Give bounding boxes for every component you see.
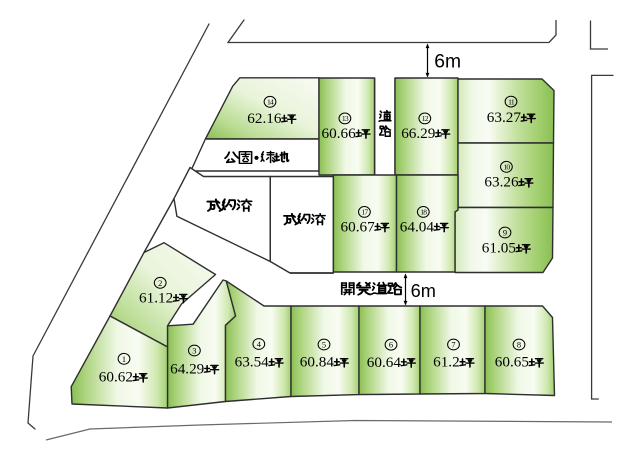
svg-text:64.29: 64.29 xyxy=(170,360,204,377)
svg-text:61.2: 61.2 xyxy=(433,354,460,371)
svg-text:12: 12 xyxy=(422,114,429,123)
svg-text:60.67: 60.67 xyxy=(341,218,376,235)
svg-text:60.62: 60.62 xyxy=(99,369,133,386)
svg-text:10: 10 xyxy=(503,163,510,172)
svg-text:13: 13 xyxy=(342,114,349,123)
svg-text:2: 2 xyxy=(158,279,162,288)
svg-text:64.04: 64.04 xyxy=(400,218,435,235)
svg-text:6: 6 xyxy=(389,341,393,350)
svg-text:17: 17 xyxy=(361,208,368,217)
svg-text:9: 9 xyxy=(503,229,507,238)
svg-text:18: 18 xyxy=(420,208,427,217)
svg-text:3: 3 xyxy=(192,347,196,356)
svg-text:60.66: 60.66 xyxy=(322,125,357,142)
svg-text:7: 7 xyxy=(451,341,455,350)
svg-text:63.27: 63.27 xyxy=(487,109,522,126)
svg-text:61.05: 61.05 xyxy=(482,240,516,257)
svg-text:6m: 6m xyxy=(434,52,461,73)
svg-text:6m: 6m xyxy=(411,281,436,301)
svg-text:1: 1 xyxy=(122,355,126,364)
svg-text:62.16: 62.16 xyxy=(247,110,282,127)
svg-text:14: 14 xyxy=(267,98,274,107)
svg-text:5: 5 xyxy=(322,341,326,350)
svg-text:61.12: 61.12 xyxy=(139,289,173,306)
svg-text:60.64: 60.64 xyxy=(367,354,402,371)
svg-text:63.26: 63.26 xyxy=(484,174,519,191)
svg-text:8: 8 xyxy=(517,341,521,350)
svg-text:66.29: 66.29 xyxy=(401,125,435,142)
svg-text:63.54: 63.54 xyxy=(235,354,270,371)
svg-text:11: 11 xyxy=(508,97,515,106)
svg-text:60.65: 60.65 xyxy=(495,354,529,371)
svg-text:60.84: 60.84 xyxy=(300,354,335,371)
